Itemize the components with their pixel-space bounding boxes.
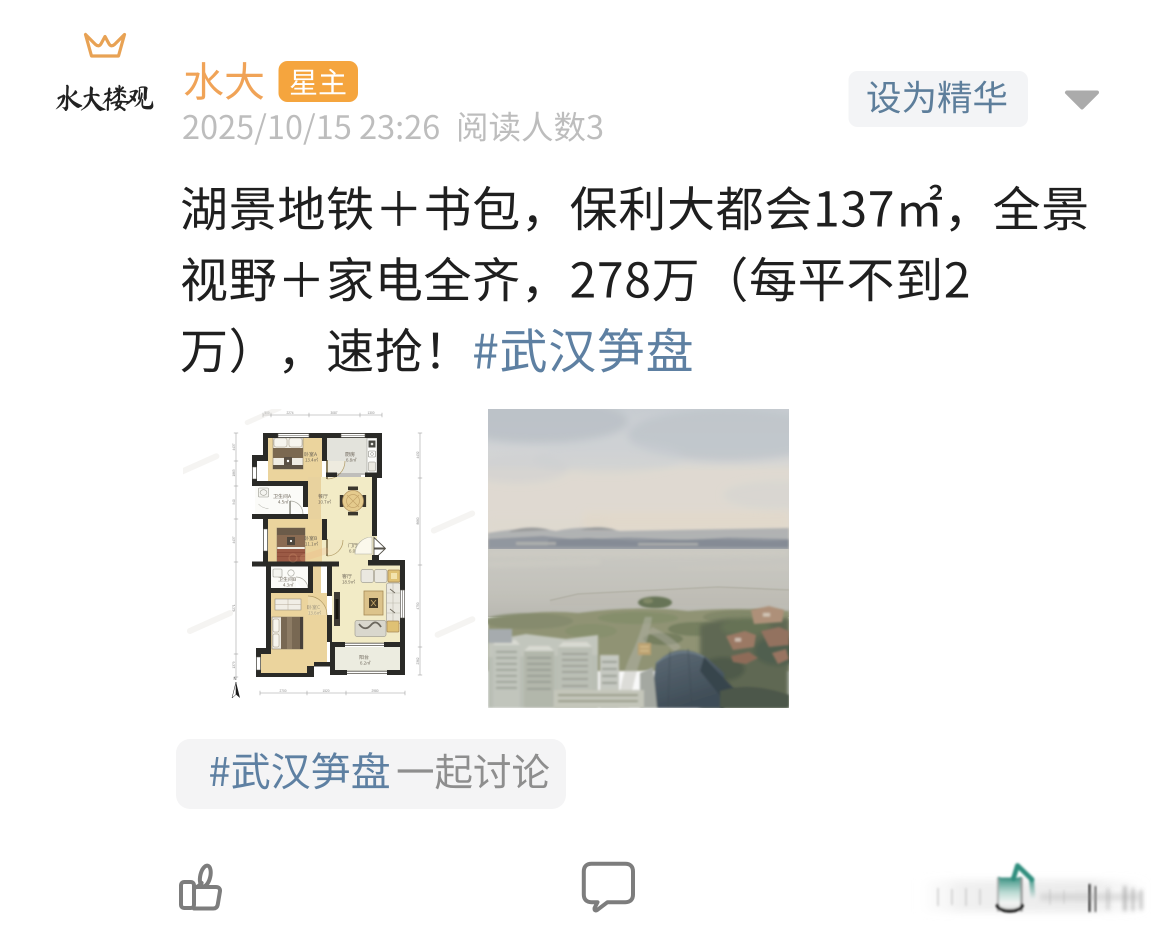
svg-text:2274: 2274 bbox=[286, 411, 293, 415]
svg-text:1863: 1863 bbox=[232, 469, 236, 476]
svg-text:4437: 4437 bbox=[232, 443, 236, 450]
svg-text:2980: 2980 bbox=[371, 689, 378, 693]
svg-text:4750: 4750 bbox=[416, 602, 420, 609]
svg-text:2362: 2362 bbox=[416, 657, 420, 664]
svg-text:2700: 2700 bbox=[279, 689, 286, 693]
svg-text:4437: 4437 bbox=[232, 536, 236, 543]
svg-text:940: 940 bbox=[232, 499, 236, 505]
svg-text:1300: 1300 bbox=[367, 411, 374, 415]
svg-text:3087: 3087 bbox=[330, 411, 337, 415]
svg-text:4432: 4432 bbox=[416, 451, 420, 458]
svg-text:1379: 1379 bbox=[232, 661, 236, 668]
svg-text:6271: 6271 bbox=[232, 604, 236, 611]
svg-text:8660: 8660 bbox=[416, 517, 420, 524]
svg-text:N: N bbox=[234, 676, 237, 681]
svg-text:1520: 1520 bbox=[322, 689, 329, 693]
